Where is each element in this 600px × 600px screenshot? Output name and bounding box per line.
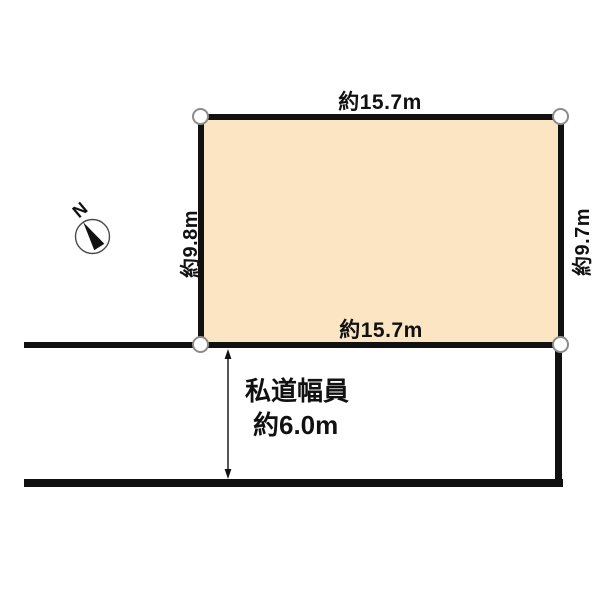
road-width-dimension-arrow	[218, 349, 238, 479]
plot-left-depth-label: 約9.8m	[174, 199, 196, 289]
road-width-label-line1: 私道幅員	[245, 376, 349, 406]
arrowhead-up-icon	[225, 349, 232, 359]
road-width-label-line2: 約6.0m	[253, 408, 349, 442]
compass-north-label: N	[69, 198, 92, 222]
road-right-edge-line	[555, 345, 562, 481]
plot-top-width-label: 約15.7m	[300, 86, 460, 116]
arrowhead-down-icon	[225, 469, 232, 479]
land-plot-parcel	[198, 114, 564, 348]
site-plan-diagram: N 約15.7m 約15.7m 約9.8m 約9.7m 私道幅員 約6.0m	[0, 0, 600, 600]
plot-corner-marker-top-right	[552, 108, 569, 125]
plot-right-depth-label: 約9.7m	[566, 197, 588, 287]
plot-corner-marker-bottom-right	[552, 336, 569, 353]
road-lower-edge-line	[24, 479, 563, 487]
plot-corner-marker-bottom-left	[192, 336, 209, 353]
plot-bottom-width-label: 約15.7m	[301, 314, 461, 344]
plot-corner-marker-top-left	[192, 108, 209, 125]
road-width-label: 私道幅員 約6.0m	[245, 374, 349, 442]
road-upper-edge-line	[24, 342, 204, 348]
north-compass-icon: N	[57, 192, 129, 264]
